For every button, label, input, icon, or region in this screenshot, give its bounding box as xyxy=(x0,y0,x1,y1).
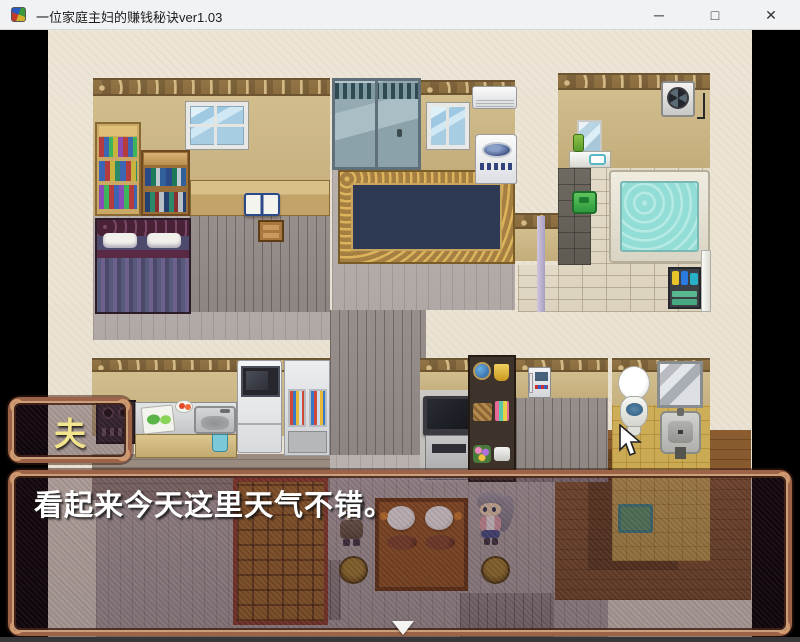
book-row xyxy=(145,168,186,186)
window-corner-ornament xyxy=(10,472,24,486)
carpet-center xyxy=(351,183,502,251)
nightstand xyxy=(258,220,284,242)
window-corner-ornament xyxy=(776,620,790,634)
window-corner-ornament xyxy=(10,620,24,634)
bottle-blue xyxy=(681,271,688,285)
door-pillar xyxy=(537,216,545,312)
book-row xyxy=(99,137,137,157)
bathtub xyxy=(609,170,710,263)
laundry-window xyxy=(427,103,469,149)
maximize-button[interactable]: □ xyxy=(692,0,738,30)
fridge xyxy=(237,360,282,453)
game-viewport[interactable]: 看起来今天这里天气不错。 夫 xyxy=(0,30,800,642)
bedroom-wall-border xyxy=(93,78,330,96)
message-window[interactable]: 看起来今天这里天气不错。 xyxy=(8,470,792,636)
close-button[interactable]: ✕ xyxy=(748,0,794,30)
flower-basket xyxy=(473,445,491,463)
window-bottom-edge xyxy=(0,637,800,642)
washing-machine xyxy=(475,134,517,184)
window-mullion xyxy=(446,107,449,145)
basket xyxy=(473,403,492,421)
intercom-handset xyxy=(529,373,533,393)
window-corner-ornament xyxy=(776,472,790,486)
washer-lid xyxy=(482,142,512,158)
bathroom-dark-tiles xyxy=(558,168,591,265)
bath-water xyxy=(620,181,699,252)
bookshelf-top xyxy=(144,153,187,165)
speaker-name: 夫 xyxy=(12,409,128,455)
toilet-sink xyxy=(660,411,701,454)
cabinet-lower-doors xyxy=(288,431,327,453)
cutting-board xyxy=(141,404,176,434)
bedroom-window xyxy=(186,102,248,149)
glass-sliding-door xyxy=(332,78,421,170)
tomato xyxy=(185,404,191,410)
drawer xyxy=(263,233,279,238)
book-row xyxy=(145,192,186,212)
towel-rail xyxy=(701,250,711,312)
bath-stool xyxy=(572,191,597,214)
tv-screen xyxy=(427,399,469,429)
bookshelf-tall xyxy=(95,122,141,216)
toilet-mirror xyxy=(657,361,703,408)
window-corner-ornament xyxy=(116,399,130,413)
sink-faucet xyxy=(677,408,684,416)
vegetable xyxy=(146,414,160,425)
book-row xyxy=(99,185,137,209)
faucet xyxy=(220,409,230,413)
bath-rack xyxy=(668,267,701,309)
hand-towel xyxy=(212,434,228,452)
ac-vents xyxy=(476,99,514,107)
bed-pillow xyxy=(147,233,181,248)
trophy xyxy=(494,364,509,381)
app-icon xyxy=(11,7,26,22)
bookshelf-top xyxy=(99,126,137,136)
stool-slot xyxy=(579,197,589,203)
minimize-button[interactable]: ─ xyxy=(636,0,682,30)
app-window: 一位家庭主妇的赚钱秘诀ver1.03 ─ □ ✕ xyxy=(0,0,800,642)
window-titlebar[interactable]: 一位家庭主妇的赚钱秘诀ver1.03 ─ □ ✕ xyxy=(0,0,800,30)
jars xyxy=(495,401,509,421)
open-book xyxy=(244,193,280,216)
soap-dish xyxy=(589,154,606,165)
double-bed xyxy=(95,218,191,314)
bookshelf-low xyxy=(141,150,190,216)
plate-tomatoes xyxy=(175,400,193,413)
bed-blanket xyxy=(97,258,189,312)
bed-trim xyxy=(97,250,189,258)
bed-pillow xyxy=(103,233,137,248)
tv-stand-slot xyxy=(432,444,466,453)
air-conditioner xyxy=(472,86,517,109)
microwave-window xyxy=(246,371,268,390)
window-corner-ornament xyxy=(10,447,24,461)
drawer xyxy=(263,225,279,230)
microwave xyxy=(241,366,280,397)
fan-cord xyxy=(697,93,705,119)
window-corner-ornament xyxy=(116,447,130,461)
toilet-water xyxy=(626,403,643,416)
continue-indicator-icon xyxy=(392,621,414,635)
kitchen-sink xyxy=(194,406,236,434)
shampoo-bottle xyxy=(573,134,584,152)
sink-basin xyxy=(201,416,229,430)
vent-fan xyxy=(661,81,695,117)
window-rail xyxy=(190,124,244,127)
washer-controls xyxy=(480,163,514,170)
intercom-screen xyxy=(535,372,548,381)
window-corner-ornament xyxy=(10,399,24,413)
intercom-buttons xyxy=(535,385,548,389)
cabinet-glass-door xyxy=(309,389,327,427)
cabinet-glass-door xyxy=(288,389,306,427)
ornate-carpet xyxy=(338,170,515,264)
bottle-teal xyxy=(690,273,698,285)
door-divider xyxy=(375,81,378,167)
dialogue-text: 看起来今天这里天气不错。 xyxy=(34,482,394,524)
corridor xyxy=(330,310,426,460)
name-window: 夫 xyxy=(8,397,132,463)
appliance xyxy=(494,447,510,461)
living-wall-border xyxy=(420,358,468,372)
glass-cabinet xyxy=(284,360,330,456)
tv xyxy=(423,396,473,436)
book-row xyxy=(99,161,137,181)
fridge-door-split xyxy=(238,423,281,425)
towel-green xyxy=(672,299,697,305)
sink-drain xyxy=(678,430,683,434)
intercom xyxy=(528,367,551,398)
vegetable xyxy=(160,415,172,425)
display-shelf xyxy=(468,355,516,482)
mouse-cursor-icon xyxy=(618,424,644,460)
sink-pipe xyxy=(675,447,686,459)
toilet-lid xyxy=(618,366,650,400)
fan-blades-icon xyxy=(667,87,689,109)
bottle-yellow xyxy=(672,271,679,285)
window-title: 一位家庭主妇的赚钱秘诀ver1.03 xyxy=(36,7,222,26)
towel-green xyxy=(672,291,697,297)
door-handle xyxy=(397,129,402,137)
globe xyxy=(473,362,491,380)
